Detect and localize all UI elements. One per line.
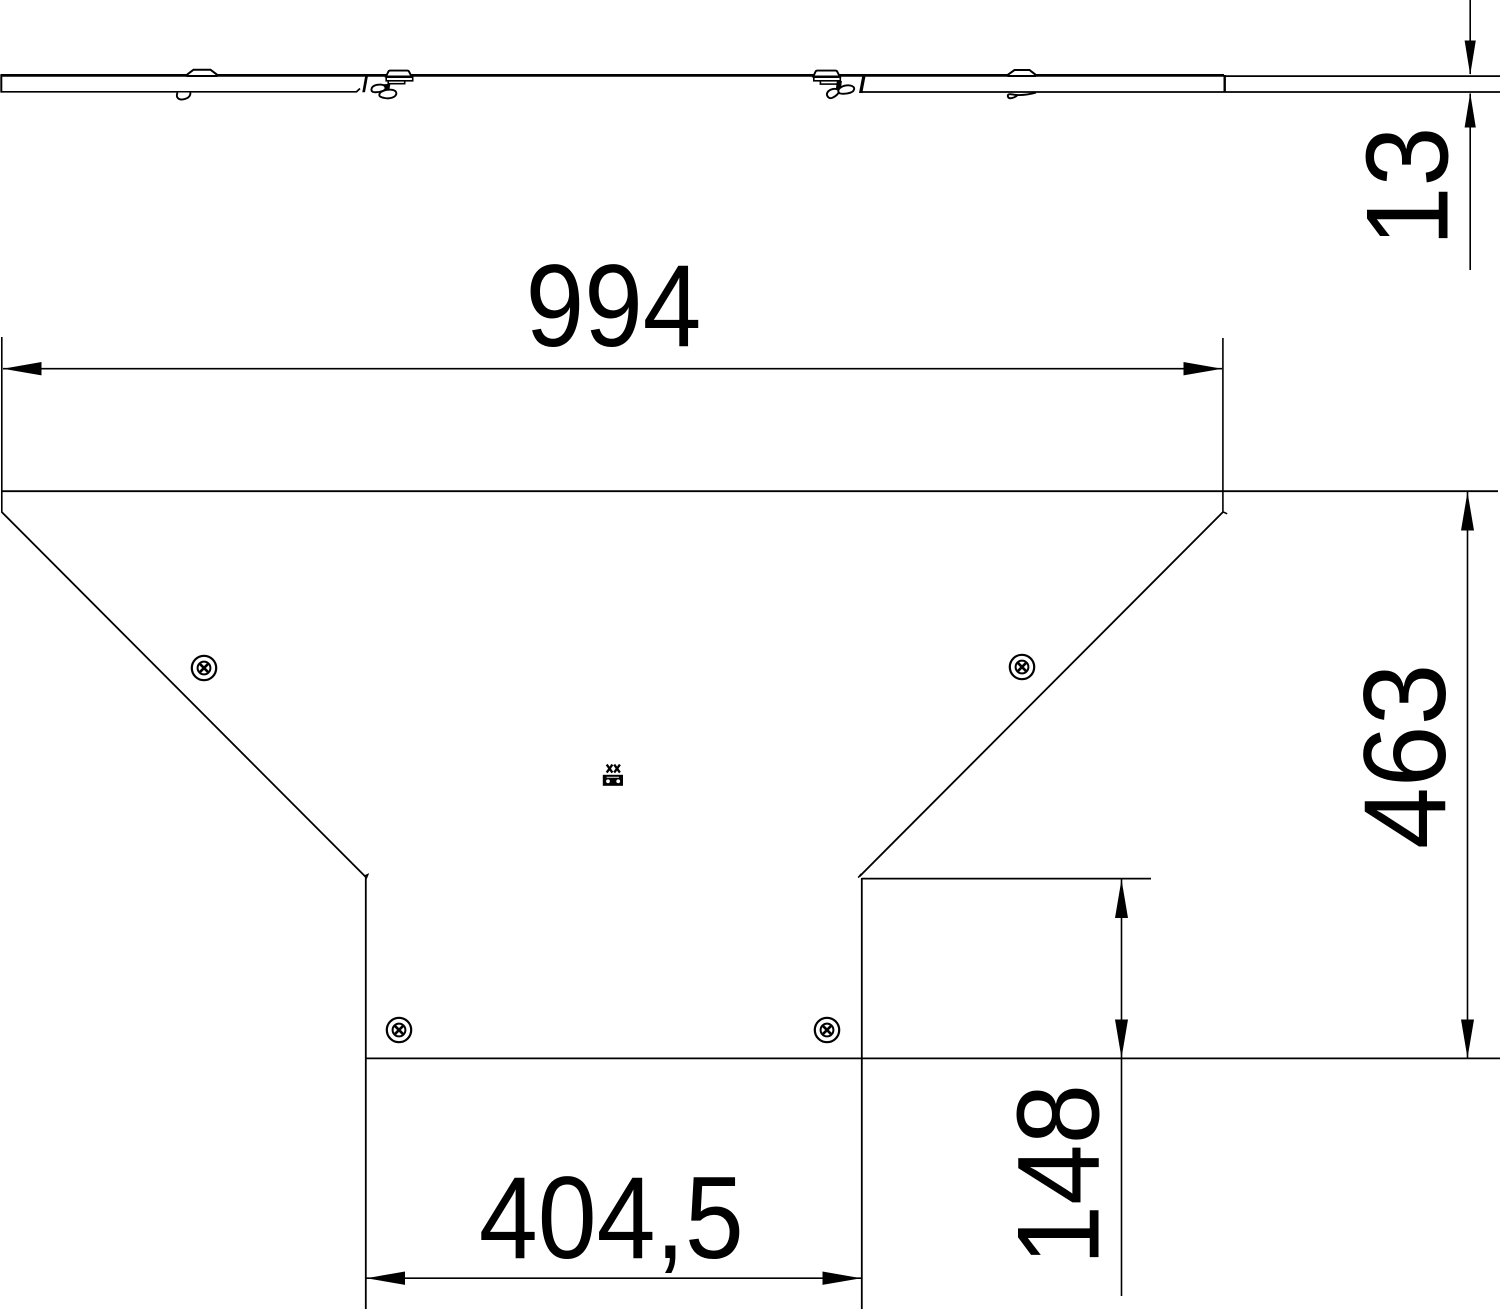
svg-text:994: 994 [526, 240, 702, 371]
svg-text:404,5: 404,5 [479, 1152, 744, 1283]
svg-text:13: 13 [1341, 127, 1472, 247]
svg-text:463: 463 [1341, 664, 1471, 849]
svg-text:148: 148 [993, 1084, 1123, 1266]
